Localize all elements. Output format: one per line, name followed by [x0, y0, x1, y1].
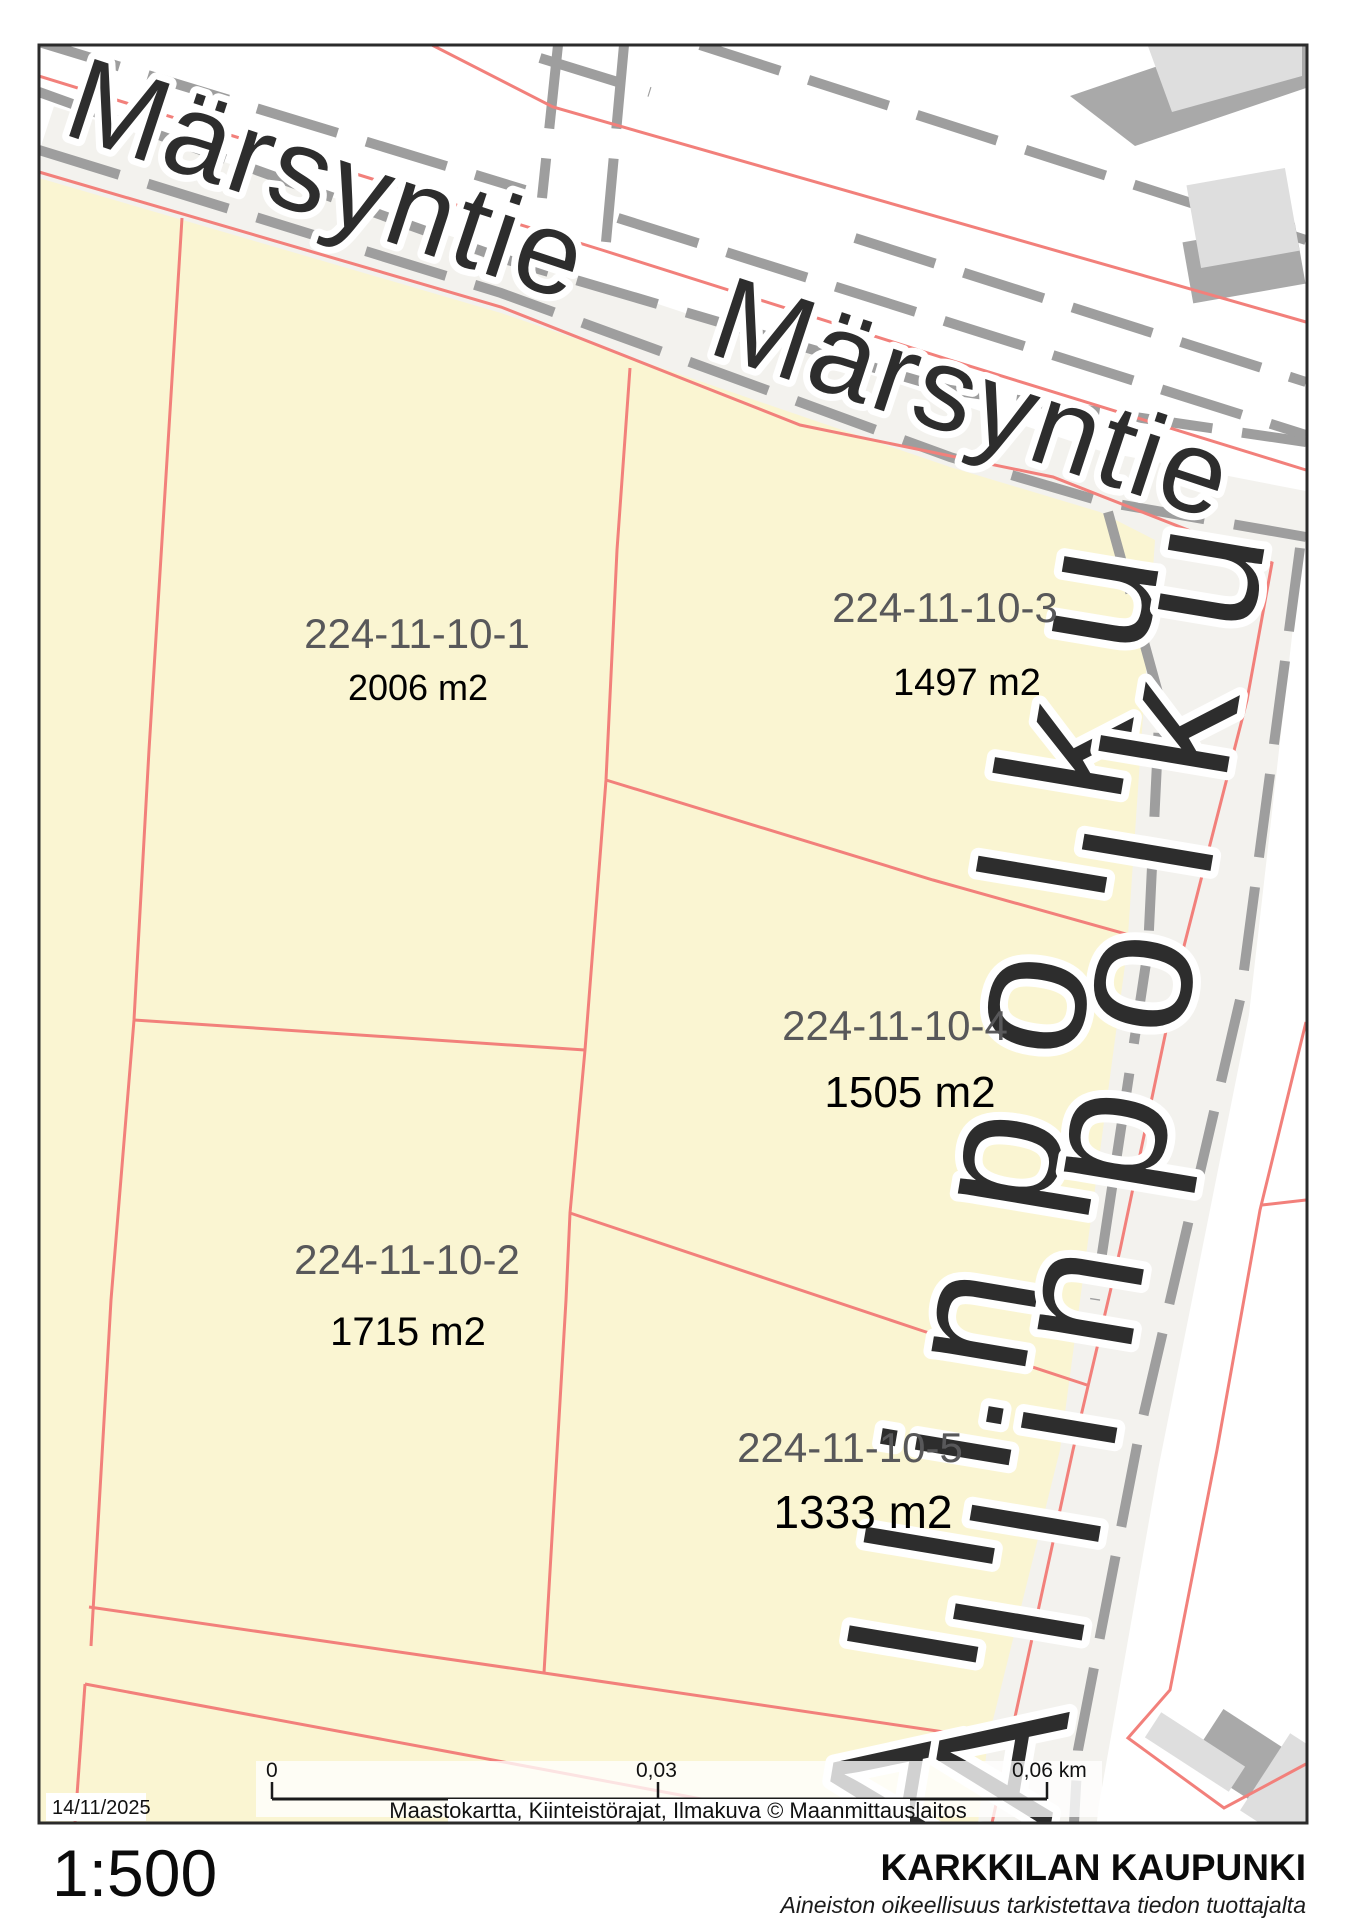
parcel-3-id: 224-11-10-3: [832, 584, 1058, 631]
municipality-title: KARKKILAN KAUPUNKI: [881, 1847, 1306, 1888]
map-scale-text: 1:500: [52, 1836, 217, 1910]
building-right: [1182, 168, 1305, 303]
scalebar-label-end: 0,06 km: [1012, 1759, 1087, 1782]
parcel-3-area: 1497 m2: [893, 662, 1041, 704]
scalebar-label-middle: 0,03: [636, 1759, 677, 1782]
scalebar-label-start: 0: [266, 1759, 278, 1782]
parcel-4-area: 1505 m2: [824, 1068, 995, 1117]
parcel-5-id: 224-11-10-5: [737, 1424, 963, 1471]
parcel-4-id: 224-11-10-4: [782, 1002, 1008, 1049]
map-date: 14/11/2025: [52, 1797, 151, 1819]
parcel-2-id: 224-11-10-2: [294, 1236, 520, 1283]
attribution-text: Maastokartta, Kiinteistörajat, Ilmakuva …: [389, 1798, 966, 1823]
map-page: Märsyntie Märsyntie Allinpolku Allinpolk…: [0, 0, 1357, 1920]
parcel-2-area: 1715 m2: [330, 1310, 486, 1354]
parcel-1-area: 2006 m2: [348, 667, 488, 708]
cadastral-map-canvas: Märsyntie Märsyntie Allinpolku Allinpolk…: [0, 0, 1357, 1920]
disclaimer-text: Aineiston oikeellisuus tarkistettava tie…: [779, 1892, 1306, 1918]
parcel-5-area: 1333 m2: [773, 1486, 952, 1538]
parcel-1-id: 224-11-10-1: [304, 610, 530, 657]
